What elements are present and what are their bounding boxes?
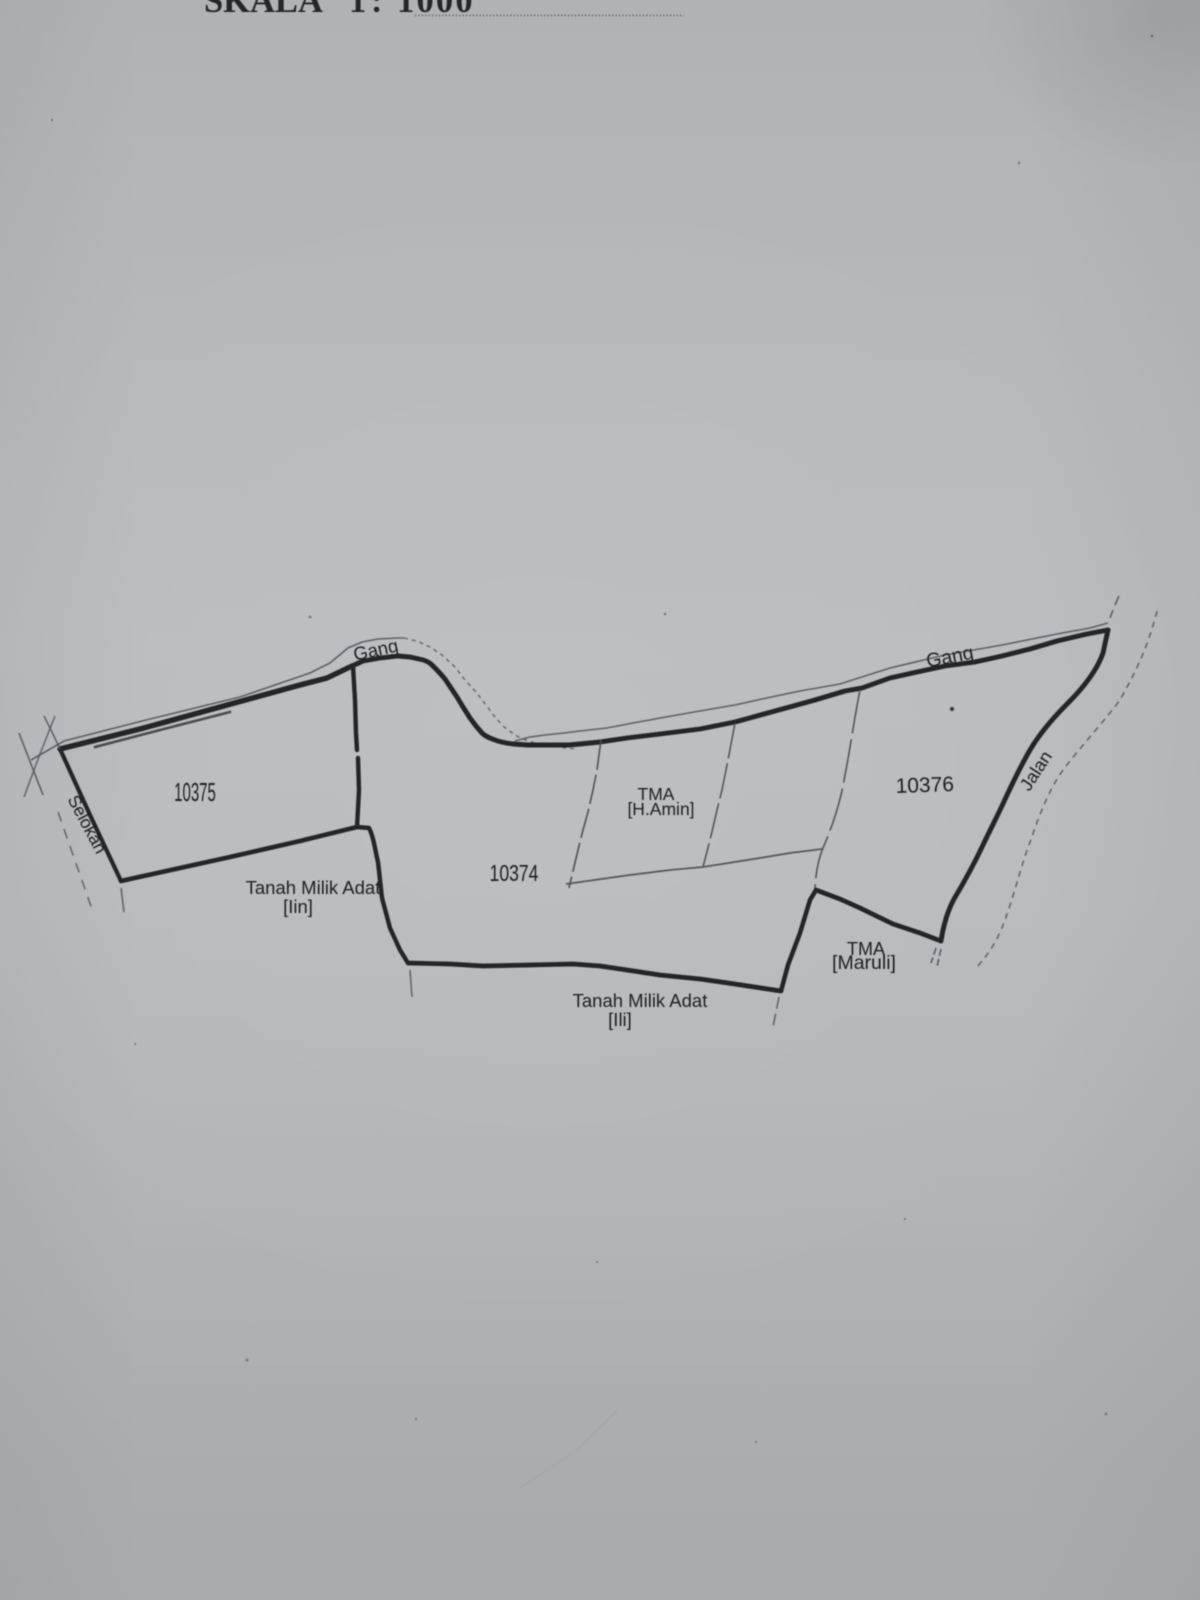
svg-text:[H.Amin]: [H.Amin] [627, 799, 694, 819]
svg-text:Tanah Milik Adat: Tanah Milik Adat [246, 877, 381, 898]
svg-text:Gang: Gang [351, 635, 400, 665]
svg-text:[Iin]: [Iin] [283, 896, 313, 917]
svg-text:Gang: Gang [924, 642, 975, 673]
svg-text:SKALA: SKALA [204, 0, 323, 20]
svg-text:1: 1 [349, 0, 366, 20]
svg-text:[Ili]: [Ili] [608, 1009, 632, 1030]
svg-text:10376: 10376 [895, 773, 954, 798]
svg-text:10375: 10375 [174, 779, 216, 807]
svg-text:10374: 10374 [490, 861, 539, 887]
svg-text:Jalan: Jalan [1016, 747, 1056, 794]
svg-text::: : [371, 0, 383, 20]
svg-text:[Maruli]: [Maruli] [832, 952, 896, 974]
svg-text:Tanah Milik Adat: Tanah Milik Adat [573, 990, 708, 1011]
svg-text:1000: 1000 [397, 0, 475, 20]
